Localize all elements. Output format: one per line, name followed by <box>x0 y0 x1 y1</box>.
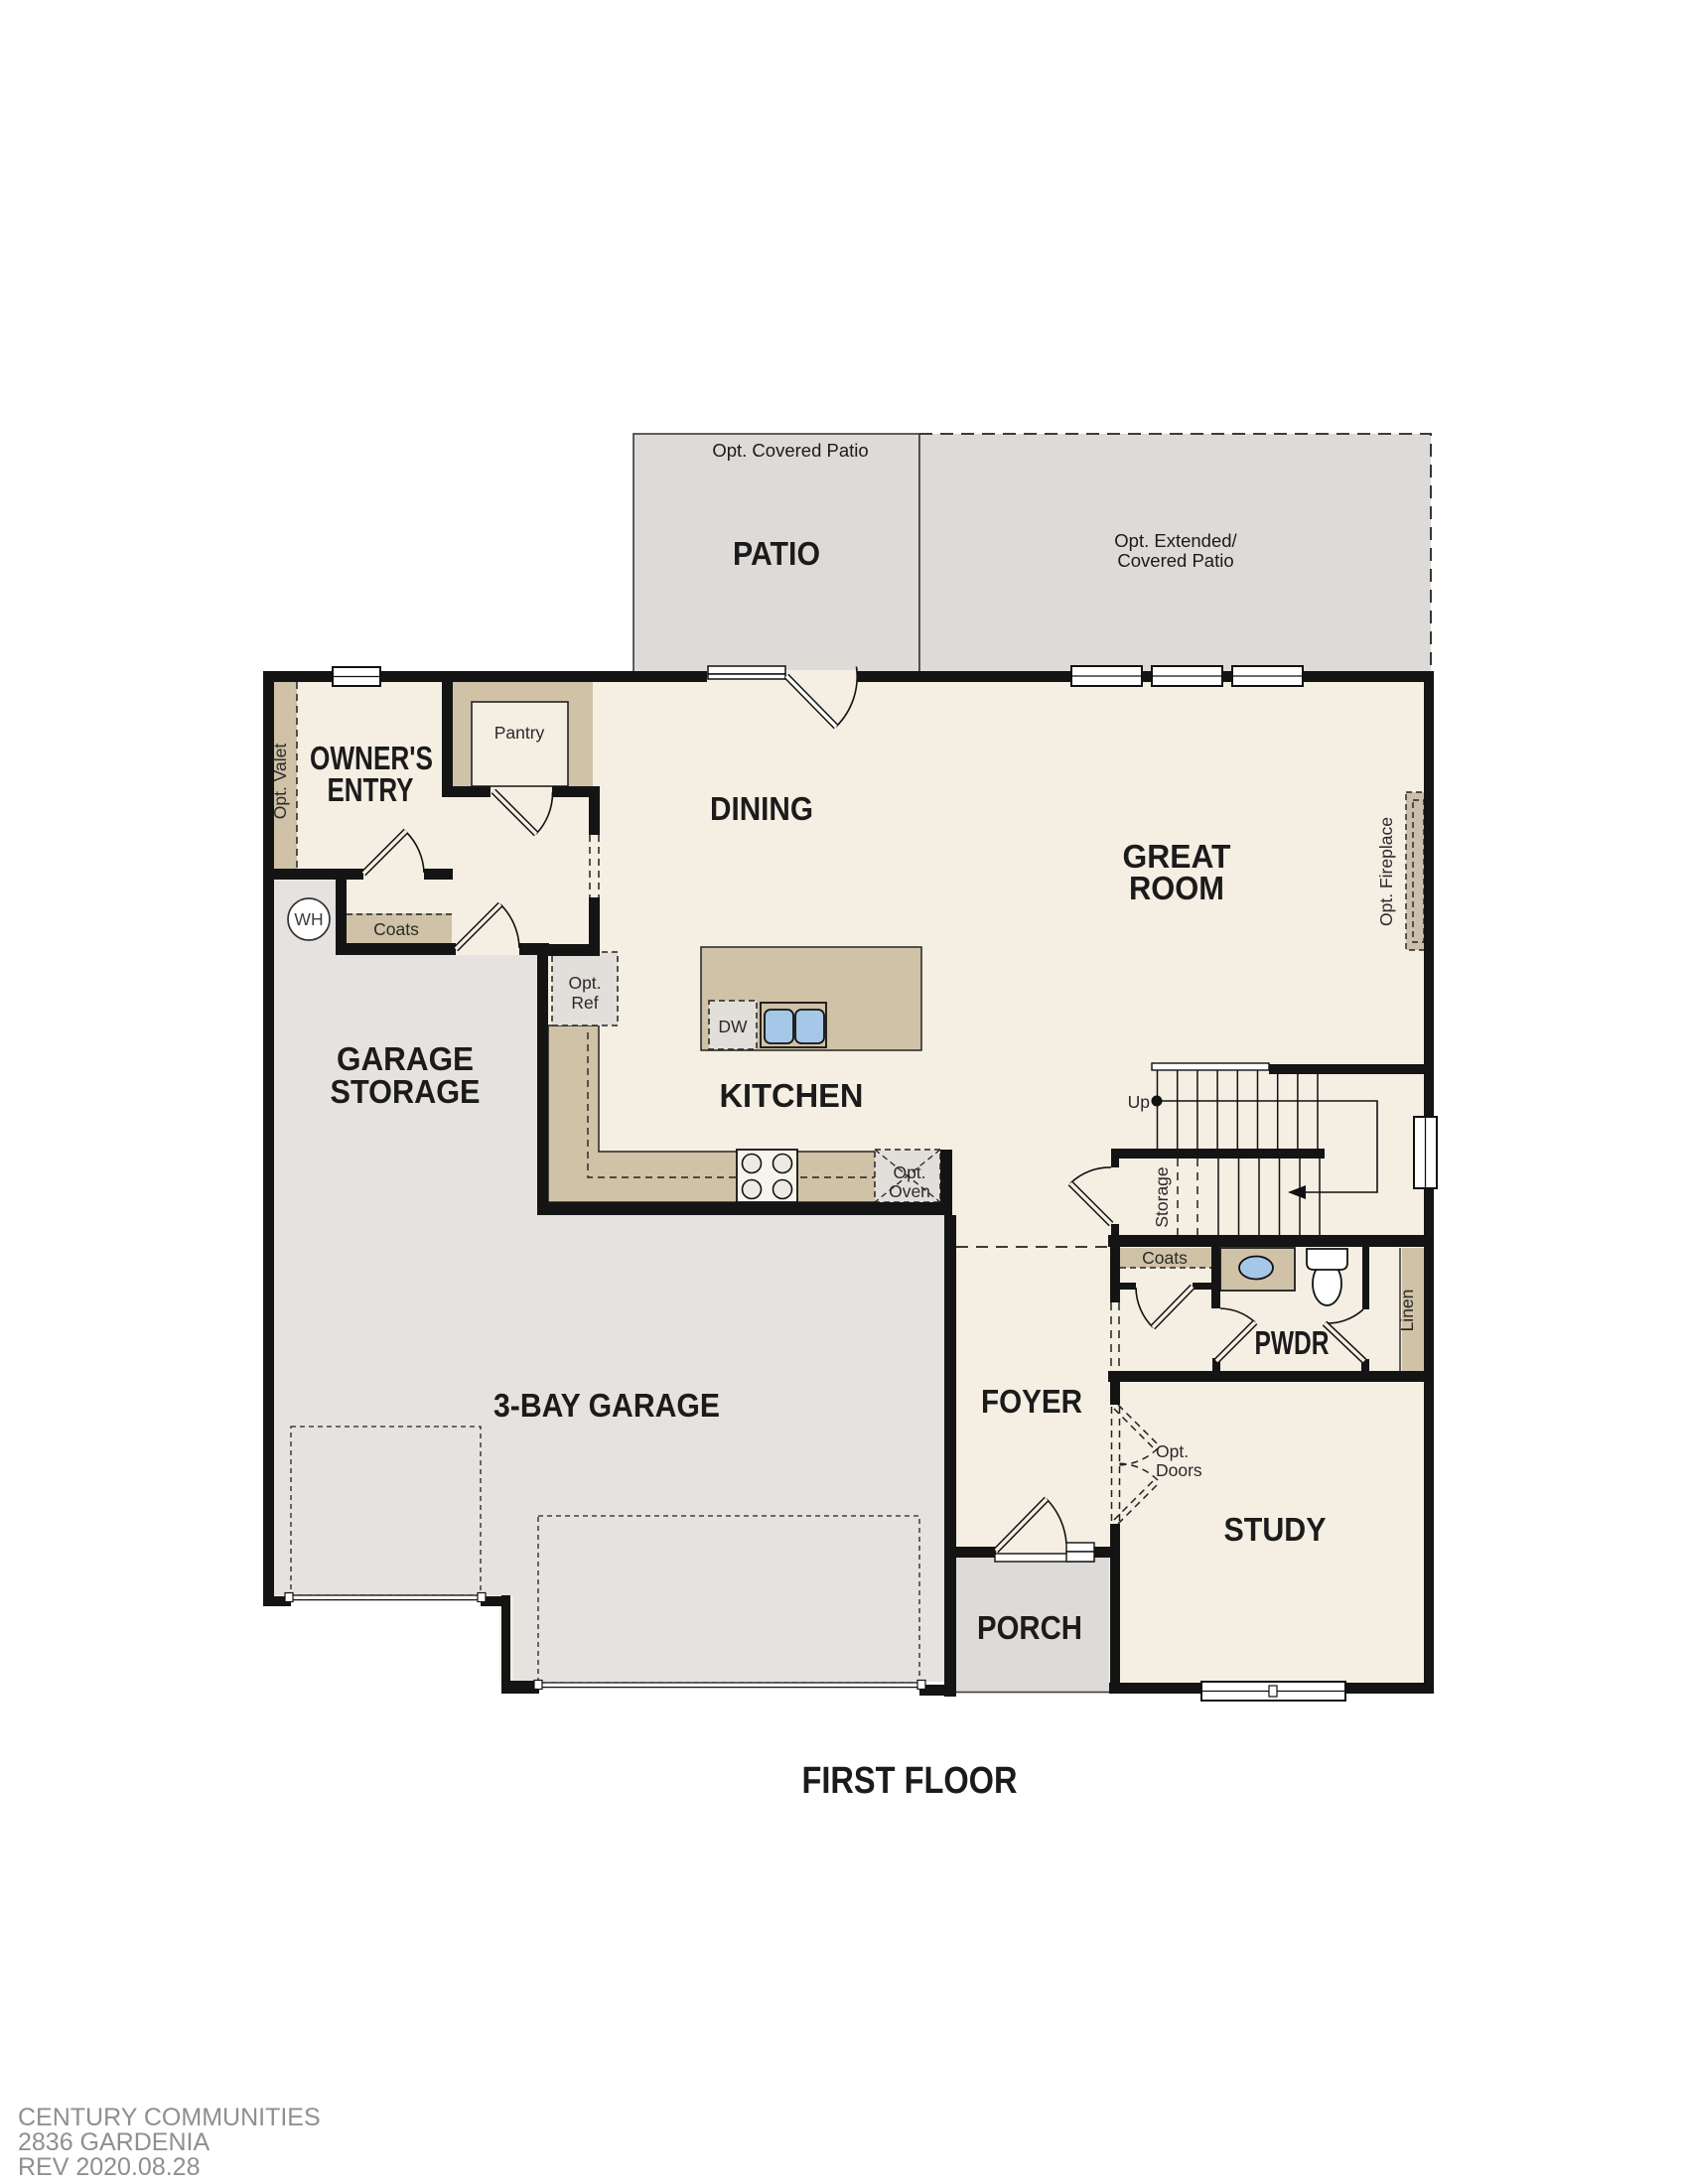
svg-text:2836 GARDENIA: 2836 GARDENIA <box>18 2128 210 2156</box>
svg-text:Linen: Linen <box>1397 1290 1417 1332</box>
svg-text:PWDR: PWDR <box>1255 1324 1330 1361</box>
svg-text:Storage: Storage <box>1152 1166 1172 1227</box>
svg-text:Opt. Extended/: Opt. Extended/ <box>1114 530 1237 551</box>
svg-text:STUDY: STUDY <box>1224 1511 1327 1548</box>
svg-text:Opt.: Opt. <box>893 1162 925 1182</box>
svg-text:STORAGE: STORAGE <box>331 1073 481 1110</box>
svg-text:Opt.: Opt. <box>568 973 601 993</box>
svg-text:ROOM: ROOM <box>1129 870 1224 906</box>
svg-text:Coats: Coats <box>373 919 419 939</box>
svg-text:Ref: Ref <box>571 993 598 1013</box>
svg-text:Opt.: Opt. <box>1156 1441 1189 1461</box>
svg-text:GARAGE: GARAGE <box>337 1040 474 1077</box>
svg-text:Doors: Doors <box>1156 1460 1202 1480</box>
svg-text:ENTRY: ENTRY <box>328 771 414 808</box>
svg-text:DW: DW <box>718 1017 748 1036</box>
svg-text:PORCH: PORCH <box>977 1609 1082 1646</box>
svg-text:Covered Patio: Covered Patio <box>1117 550 1233 571</box>
svg-text:3-BAY GARAGE: 3-BAY GARAGE <box>493 1387 720 1424</box>
svg-text:Opt. Valet: Opt. Valet <box>270 744 290 820</box>
svg-text:Oven: Oven <box>889 1181 930 1201</box>
svg-text:Opt. Covered Patio: Opt. Covered Patio <box>712 440 868 461</box>
svg-text:KITCHEN: KITCHEN <box>720 1077 864 1114</box>
svg-text:WH: WH <box>294 909 323 929</box>
svg-text:FIRST FLOOR: FIRST FLOOR <box>802 1760 1018 1802</box>
svg-text:Up: Up <box>1128 1092 1150 1112</box>
svg-text:Opt. Fireplace: Opt. Fireplace <box>1376 817 1396 926</box>
svg-text:Pantry: Pantry <box>494 723 545 743</box>
svg-text:REV 2020.08.28: REV 2020.08.28 <box>18 2153 200 2181</box>
svg-text:CENTURY COMMUNITIES: CENTURY COMMUNITIES <box>18 2104 321 2131</box>
svg-text:FOYER: FOYER <box>981 1383 1082 1420</box>
svg-text:PATIO: PATIO <box>733 535 820 572</box>
svg-text:DINING: DINING <box>710 790 813 827</box>
svg-text:Coats: Coats <box>1142 1248 1188 1268</box>
